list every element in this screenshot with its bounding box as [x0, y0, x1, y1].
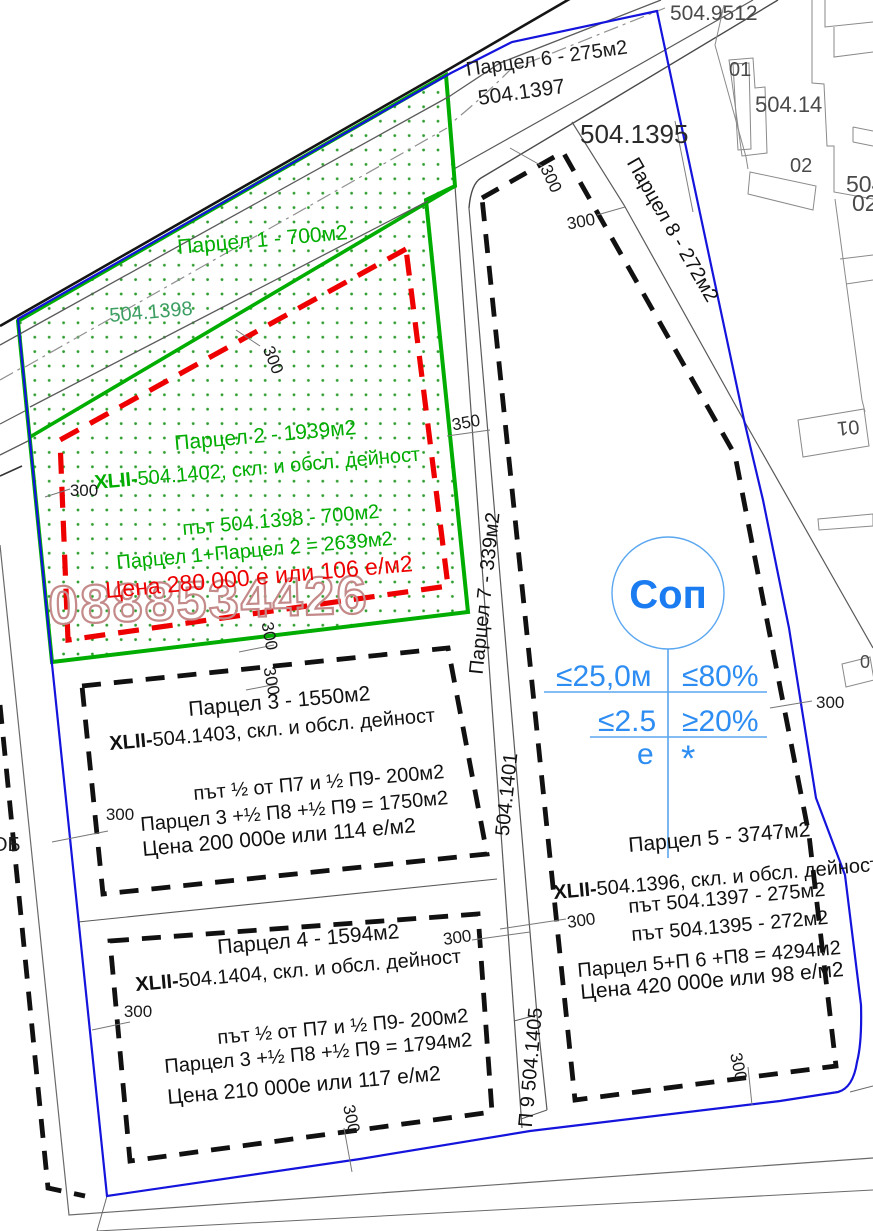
svg-text:01: 01: [729, 59, 751, 81]
svg-text:02: 02: [790, 155, 812, 177]
svg-text:300: 300: [106, 805, 134, 824]
svg-text:02: 02: [852, 190, 873, 216]
svg-text:≤2.5: ≤2.5: [598, 705, 656, 738]
svg-text:ОБ: ОБ: [0, 834, 21, 856]
svg-text:300: 300: [124, 1002, 152, 1021]
svg-text:300: 300: [70, 481, 98, 500]
svg-text:504.1395: 504.1395: [580, 119, 688, 149]
svg-text:504.9512: 504.9512: [670, 2, 758, 25]
svg-text:Соп: Соп: [629, 573, 706, 617]
svg-text:≥20%: ≥20%: [682, 705, 759, 738]
svg-text:01: 01: [836, 415, 860, 439]
svg-text:300: 300: [442, 926, 473, 949]
svg-text:504.14: 504.14: [755, 92, 822, 117]
svg-text:0: 0: [860, 652, 870, 672]
svg-text:*: *: [681, 738, 695, 779]
svg-text:300: 300: [816, 693, 844, 712]
svg-text:≤80%: ≤80%: [682, 660, 759, 693]
svg-text:≤25,0м: ≤25,0м: [556, 660, 651, 693]
svg-text:е: е: [637, 738, 654, 771]
svg-text:300: 300: [566, 909, 597, 932]
